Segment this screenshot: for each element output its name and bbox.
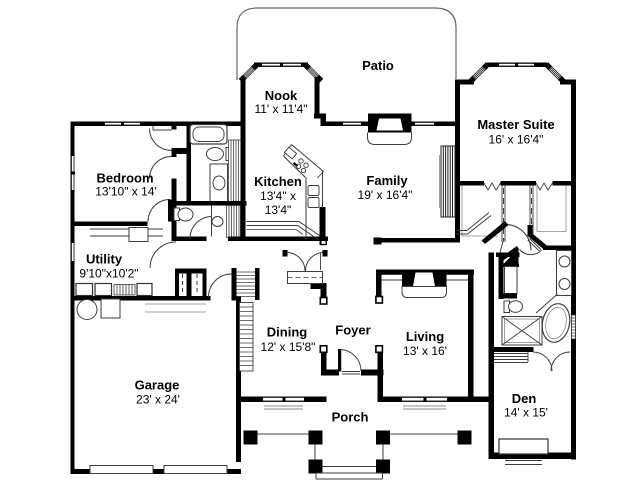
svg-text:16' x 16'4": 16' x 16'4" — [489, 133, 544, 147]
svg-text:13' x 16': 13' x 16' — [403, 344, 447, 358]
svg-text:Family: Family — [366, 173, 408, 188]
svg-text:Patio: Patio — [362, 58, 394, 73]
svg-text:9'10"x10'2": 9'10"x10'2" — [79, 267, 138, 281]
svg-text:Master Suite: Master Suite — [477, 117, 554, 132]
svg-text:Dining: Dining — [267, 325, 307, 340]
svg-text:Kitchen: Kitchen — [254, 174, 302, 189]
svg-text:Den: Den — [512, 391, 537, 406]
svg-text:Foyer: Foyer — [335, 323, 370, 338]
svg-text:Nook: Nook — [265, 88, 298, 103]
svg-text:23' x 24': 23' x 24' — [136, 393, 180, 407]
svg-text:13'10" x 14': 13'10" x 14' — [95, 185, 157, 199]
svg-text:Bedroom: Bedroom — [96, 171, 153, 186]
svg-text:12' x 15'8": 12' x 15'8" — [261, 340, 316, 354]
svg-text:Porch: Porch — [332, 410, 369, 425]
svg-text:14' x 15': 14' x 15' — [504, 406, 548, 420]
svg-text:11' x 11'4": 11' x 11'4" — [254, 102, 307, 116]
svg-text:Living: Living — [406, 329, 444, 344]
svg-text:19' x 16'4": 19' x 16'4" — [358, 188, 413, 202]
svg-text:13'4" x: 13'4" x — [260, 189, 296, 203]
svg-text:13'4": 13'4" — [265, 203, 292, 217]
svg-text:Utility: Utility — [86, 252, 123, 267]
svg-text:Garage: Garage — [135, 378, 180, 393]
